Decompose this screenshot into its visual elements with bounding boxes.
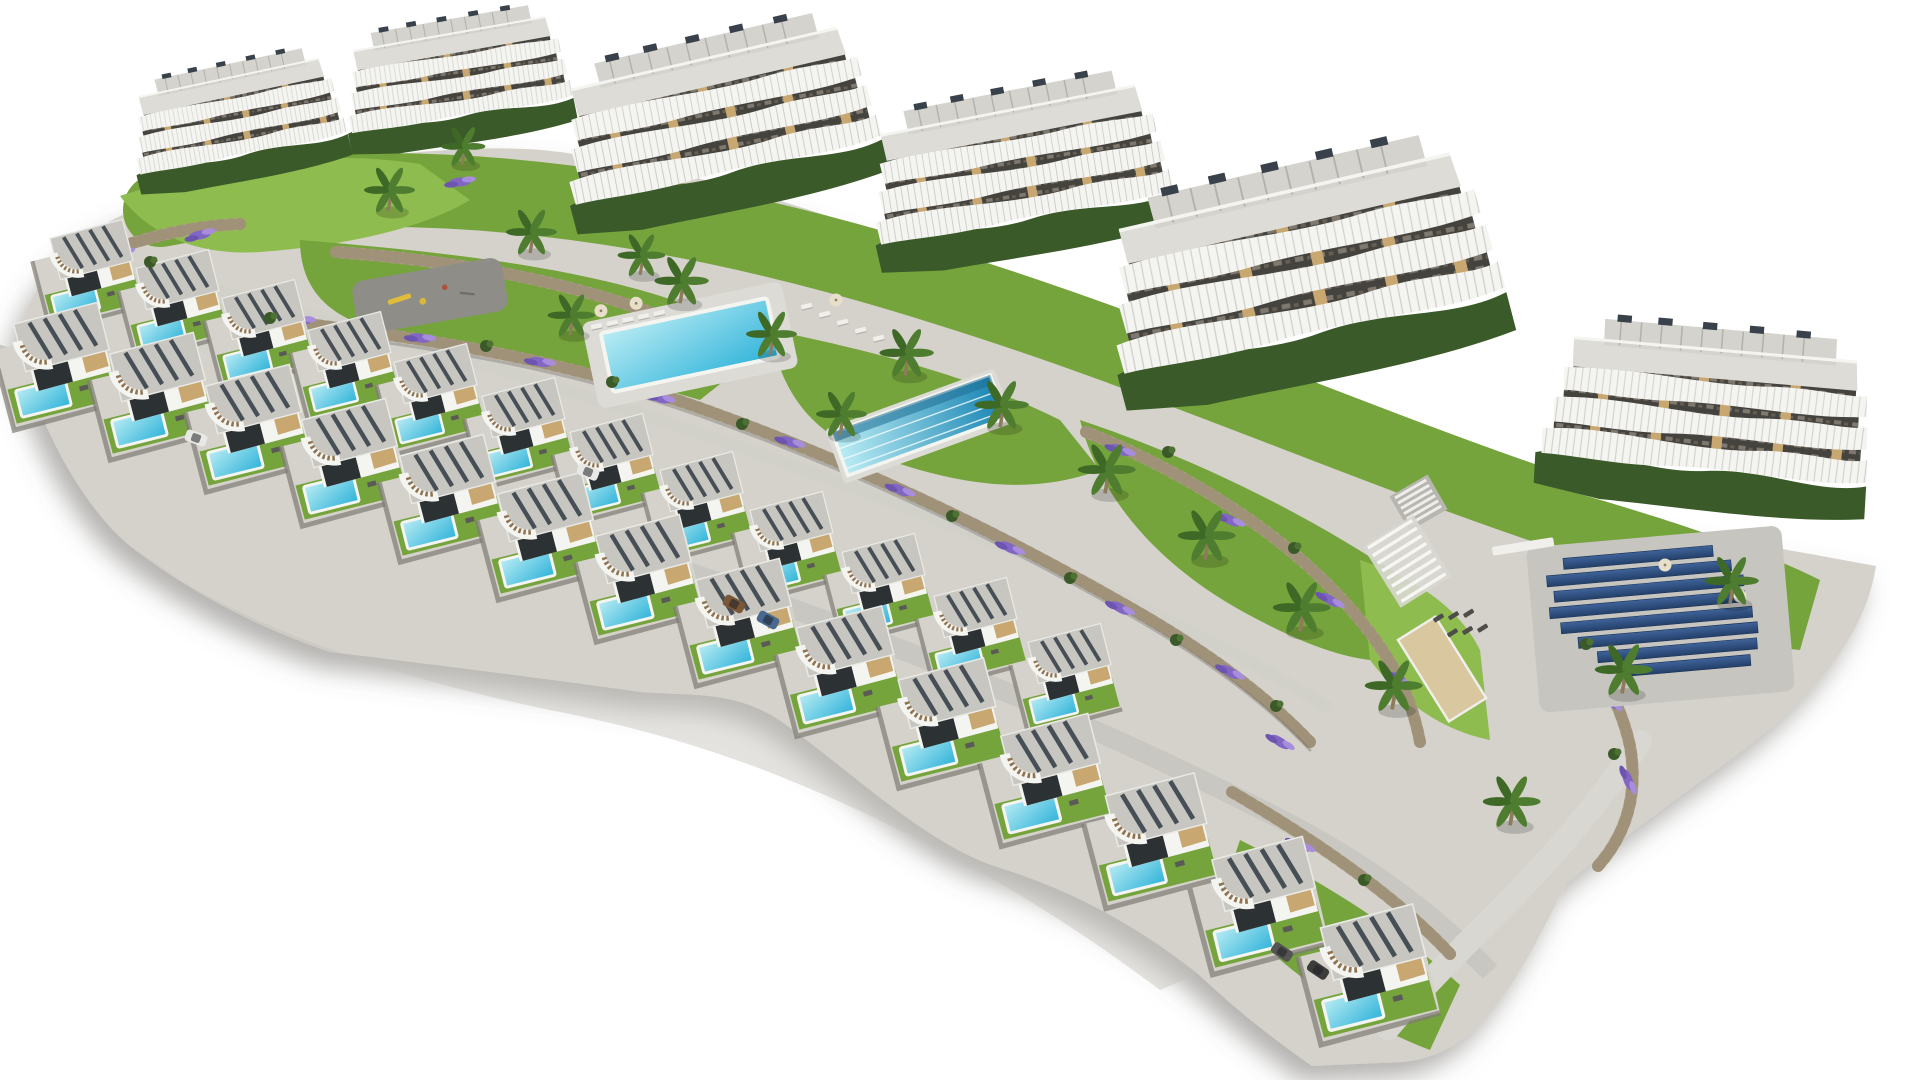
apartment-block-3 xyxy=(542,0,893,242)
aerial-render-canvas xyxy=(0,0,1920,1080)
aerial-render xyxy=(0,0,1920,1080)
parasol xyxy=(830,294,843,307)
parasol xyxy=(1659,559,1672,572)
solar-court xyxy=(1526,525,1795,713)
